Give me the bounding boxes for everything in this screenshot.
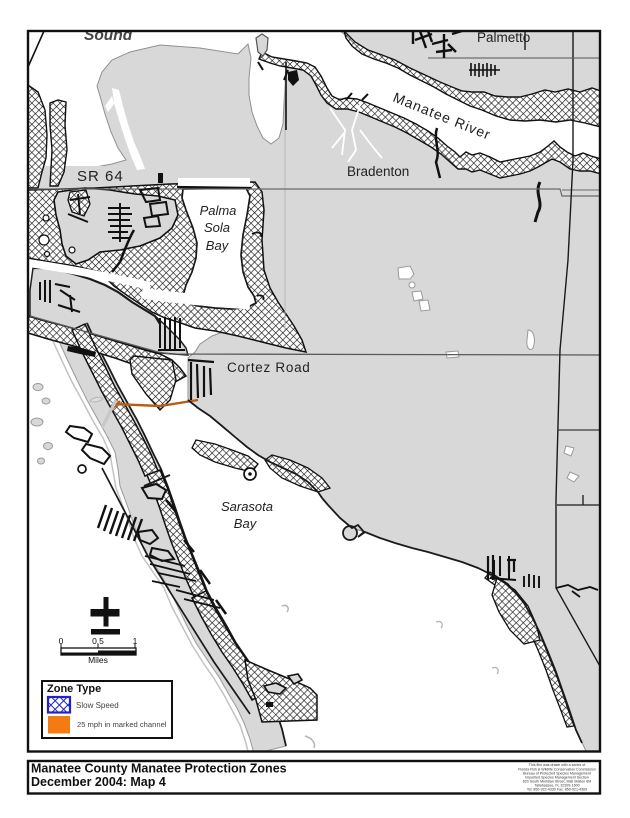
svg-text:This film was drawn with a ser: This film was drawn with a series of <box>529 763 586 767</box>
svg-text:SR 64: SR 64 <box>77 168 124 185</box>
svg-text:25 mph in marked channel: 25 mph in marked channel <box>77 720 167 729</box>
svg-text:Palma: Palma <box>200 203 237 218</box>
svg-text:December 2004: Map 4: December 2004: Map 4 <box>31 775 166 789</box>
svg-text:Sarasota: Sarasota <box>221 499 273 514</box>
svg-text:Palmetto: Palmetto <box>477 30 530 45</box>
svg-text:Bay: Bay <box>234 516 258 531</box>
svg-text:Miles: Miles <box>88 655 108 665</box>
svg-text:Manatee County Manatee Protect: Manatee County Manatee Protection Zones <box>31 762 287 776</box>
svg-text:Cortez Road: Cortez Road <box>227 360 311 375</box>
svg-text:Slow Speed: Slow Speed <box>76 701 119 710</box>
svg-text:Sola: Sola <box>204 220 230 235</box>
svg-text:Bay: Bay <box>206 238 230 253</box>
svg-text:Tel: 850-922-4330 Fax: 850-92: Tel: 850-922-4330 Fax: 850-921-4369 <box>527 788 587 792</box>
svg-text:Bradenton: Bradenton <box>347 164 409 179</box>
svg-text:Zone Type: Zone Type <box>47 683 101 695</box>
